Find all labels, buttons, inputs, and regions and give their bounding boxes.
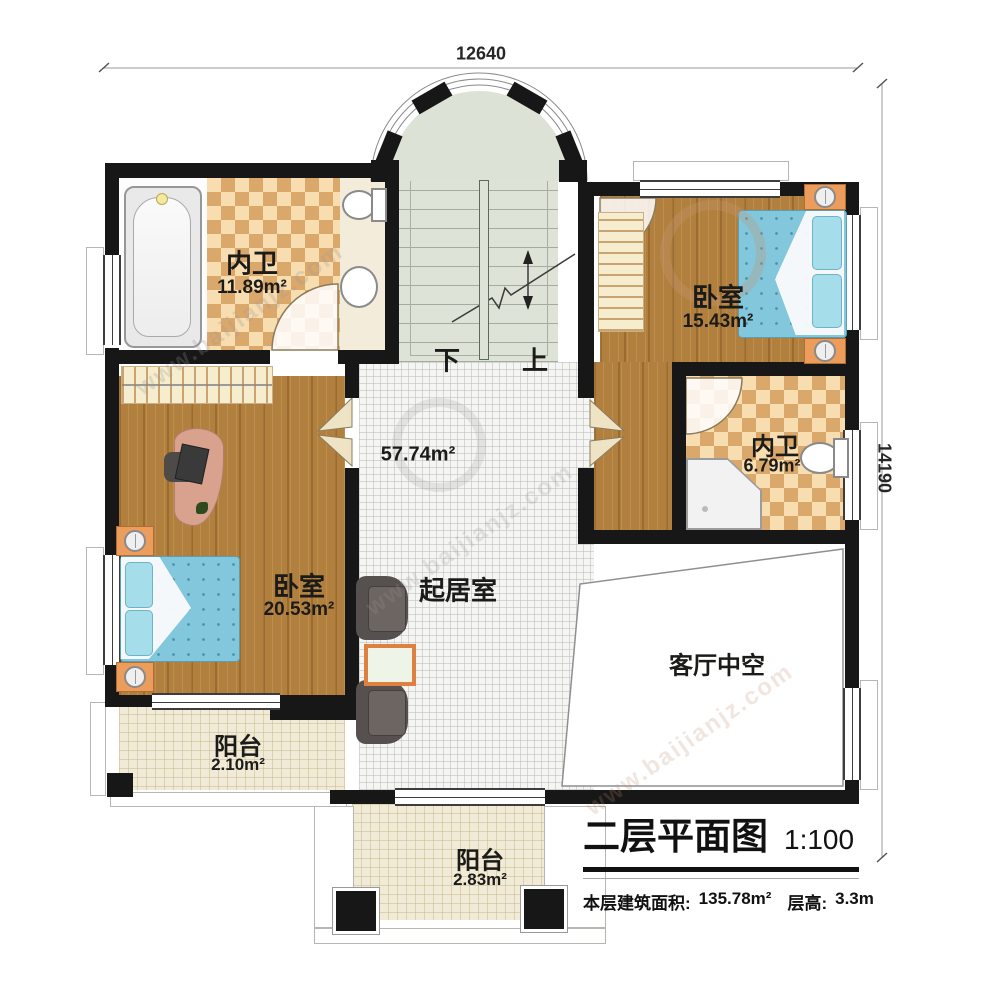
room-area-balcony2: 2.83m² [453,870,507,890]
lamp-icon [124,666,146,688]
balcony-pillar [333,888,379,934]
room-area-bath1: 11.89m² [217,277,287,299]
window-sill [860,207,878,340]
floor-area-value: 135.78m² [699,889,772,914]
wall-segment [578,468,594,544]
bed-pillow [125,610,153,656]
window-sill [86,247,104,355]
room-label-living: 起居室 [419,571,497,608]
window [103,255,121,345]
title-rule-thin [583,878,859,879]
dimension-top: 12640 [456,44,506,65]
balcony-railing [110,792,347,807]
wall-segment [105,163,119,255]
wardrobe [598,212,644,332]
lamp-icon [124,530,146,552]
room-label-bedroom2: 卧室 [273,567,325,604]
dimension-right: 14190 [874,443,895,493]
room-area-balcony1: 2.10m² [211,755,265,775]
wall-segment [672,362,686,544]
floor-height-label: 层高: [787,889,827,914]
bathtub-basin [133,197,191,337]
sink-icon [340,266,378,308]
window [103,555,121,665]
balcony-railing [90,702,106,796]
window [152,693,280,710]
wall-segment [594,530,672,544]
stair-rail [479,180,489,360]
wall-segment [578,182,594,398]
room-area-bedroom1: 15.43m² [683,311,754,333]
window-sill [860,680,878,790]
balcony-pillar [521,886,567,932]
bed-pillow [812,274,842,328]
bed-pillow [812,216,842,270]
room-area-bath2: 6.79m² [743,456,800,477]
room-label-bedroom1: 卧室 [692,278,744,315]
stair-up-label: 上 [522,341,548,378]
room-label-void: 客厅中空 [669,646,765,681]
title-rule-thick [583,867,859,872]
lamp-icon [814,186,836,208]
stair-down-label: 下 [434,341,460,378]
wall-segment [270,706,359,720]
wall-segment [385,163,399,364]
floor-area-label: 本层建筑面积: [583,889,691,914]
lamp-icon [814,340,836,362]
window [843,688,861,780]
shower-drain-icon [702,506,708,512]
floor-plan: www.baijianjz.com www.baijianjz.com www.… [0,0,1000,990]
balcony-corner-post [107,773,133,797]
wall-segment [672,362,859,376]
floor-height-value: 3.3m [835,889,874,914]
plan-title: 二层平面图 [583,806,768,860]
room-area-bedroom2: 20.53m² [264,599,335,621]
room-area-living: 57.74m² [381,444,456,467]
title-block: 二层平面图 1:100 本层建筑面积: 135.78m² 层高: 3.3m [583,806,859,914]
window-sill [86,547,104,675]
faucet-icon [156,193,168,205]
wall-segment [105,348,119,555]
bed-pillow [125,562,153,608]
wall-segment [672,530,859,544]
room-label-bath1: 内卫 [226,244,278,281]
window [395,788,545,806]
wall-segment [105,163,399,178]
plan-scale: 1:100 [784,824,854,856]
toilet-tank [833,438,849,478]
side-table [364,644,416,686]
plant-icon [196,502,208,514]
window [640,180,780,198]
toilet-tank [371,188,387,222]
wall-segment [345,364,359,398]
window-sill [633,161,789,181]
armchair-seat [368,690,406,736]
